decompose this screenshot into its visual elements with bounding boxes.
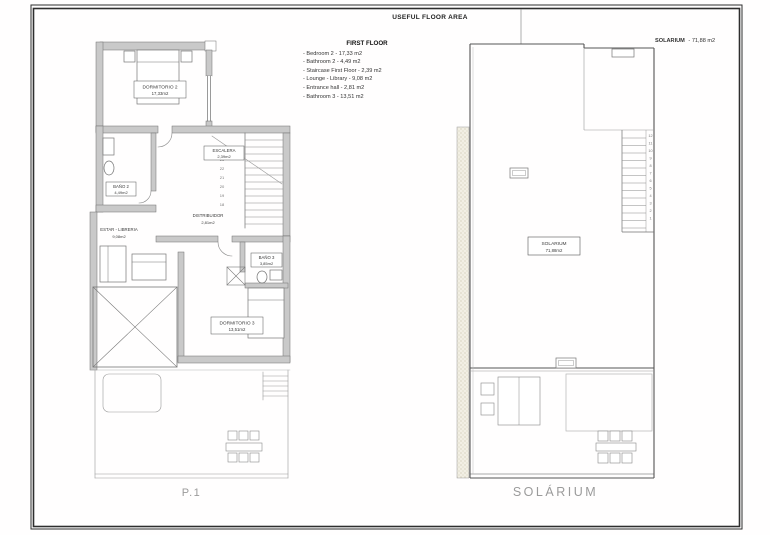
sol-step-number: 7 — [649, 172, 651, 176]
plan-caption-solarium: SOLÁRIUM — [457, 485, 654, 499]
room-name: DORMITORIO 2 — [142, 85, 177, 91]
p1-step-number: 18 — [220, 202, 225, 207]
floor-plan-p1: 23 22 21 20 19 18 — [90, 41, 290, 478]
plan-caption-p1: P.1 — [95, 487, 288, 499]
nightstand — [124, 51, 135, 62]
room-name: BAÑO 3 — [259, 255, 275, 260]
label-bano2: BAÑO 2 4,49m2 — [106, 182, 136, 196]
p1-step-number: 19 — [220, 193, 225, 198]
room-area: 9,08m2 — [112, 234, 126, 239]
sol-step-number: 9 — [649, 157, 651, 161]
p1-step-number: 22 — [220, 166, 225, 171]
label-estar-libreria: ESTAR - LIBRERIA 9,08m2 — [100, 227, 138, 239]
solarium-vents — [510, 49, 634, 368]
solarium-terrace-furniture — [481, 374, 652, 463]
solarium-textured-wall-strip — [457, 127, 469, 478]
planter — [103, 374, 161, 412]
legend-title: FIRST FLOOR — [303, 40, 431, 49]
solarium-area-header: SOLARIUM - 71,88 m2 — [655, 38, 765, 44]
room-area: 2,81m2 — [201, 220, 215, 225]
sofa-bottom — [132, 254, 166, 280]
room-area: 4,49m2 — [114, 190, 128, 195]
label-dormitorio2: DORMITORIO 2 17,33m2 — [134, 81, 186, 98]
solarium-outline — [470, 44, 654, 478]
solarium-header-label: SOLARIUM — [655, 38, 685, 44]
room-name: BAÑO 2 — [113, 184, 129, 189]
room-name: SOLARIUM — [541, 241, 566, 247]
p1-stair-step-numbers: 23 22 21 20 19 18 — [220, 157, 225, 207]
first-floor-legend: FIRST FLOOR - Bedroom 2 - 17,33 m2 - Bat… — [303, 40, 443, 101]
lounge-chair — [481, 383, 494, 395]
pergola-outline — [566, 374, 652, 431]
sol-step-number: 12 — [648, 134, 652, 138]
legend-item: - Entrance hall - 2,81 m2 — [303, 84, 443, 93]
room-area: 71,88m2 — [546, 248, 563, 253]
room-area: 13,51m2 — [229, 327, 246, 332]
p1-terrace — [90, 370, 290, 478]
legend-item: - Staircase First Floor - 2,39 m2 — [303, 67, 443, 76]
sol-step-number: 4 — [649, 194, 651, 198]
label-dormitorio3: DORMITORIO 3 13,51m2 — [211, 317, 263, 334]
table — [226, 443, 262, 451]
sheet-title: USEFUL FLOOR AREA — [330, 14, 530, 21]
room-name: ESTAR - LIBRERIA — [100, 227, 138, 232]
shower-bath3 — [227, 267, 245, 285]
solarium-stair-step-numbers: 12 11 10 9 8 7 6 5 4 3 2 1 — [648, 134, 652, 221]
solarium-table-chairs — [596, 431, 636, 463]
roof-vent — [612, 49, 634, 57]
sol-step-number: 8 — [649, 164, 651, 168]
room-area: 2,39m2 — [217, 154, 231, 159]
solarium-header-area: - 71,88 m2 — [688, 38, 715, 44]
room-area: 3,85m2 — [260, 261, 274, 266]
floor-plan-solarium: 12 11 10 9 8 7 6 5 4 3 2 1 — [457, 44, 654, 478]
drawing-sheet: 23 22 21 20 19 18 — [0, 0, 770, 535]
p1-steps — [263, 372, 288, 400]
legend-item: - Lounge - Library - 9,08 m2 — [303, 75, 443, 84]
p1-step-number: 20 — [220, 184, 225, 189]
bath3-sink — [270, 270, 282, 280]
sol-step-number: 3 — [649, 202, 651, 206]
bath2-sink — [103, 138, 114, 155]
sol-step-number: 2 — [649, 209, 651, 213]
legend-item: - Bathroom 3 - 13,51 m2 — [303, 93, 443, 102]
sol-step-number: 1 — [649, 217, 651, 221]
room-name: ESCALERA — [213, 148, 236, 153]
sol-step-number: 10 — [648, 149, 652, 153]
sol-step-number: 11 — [649, 142, 653, 146]
bath2-toilet — [104, 161, 114, 175]
sol-step-number: 6 — [649, 179, 651, 183]
label-bano3: BAÑO 3 3,85m2 — [251, 253, 282, 267]
sol-step-number: 5 — [649, 187, 651, 191]
legend-item: - Bathroom 2 - 4,49 m2 — [303, 58, 443, 67]
room-name: DISTRIBUIDOR — [193, 213, 224, 218]
table — [596, 443, 636, 451]
label-solarium: SOLARIUM 71,88m2 — [528, 237, 580, 255]
legend-item: - Bedroom 2 - 17,33 m2 — [303, 50, 443, 59]
lounge-chair — [481, 403, 494, 415]
nightstand — [181, 51, 192, 62]
solarium-staircase: 12 11 10 9 8 7 6 5 4 3 2 1 — [622, 130, 654, 232]
sofa-left — [100, 246, 126, 282]
room-name: DORMITORIO 3 — [219, 321, 254, 327]
label-distribuidor: DISTRIBUIDOR 2,81m2 — [193, 213, 224, 225]
bath3-toilet — [257, 271, 267, 283]
void-cross-square — [93, 287, 177, 367]
p1-table-chairs — [226, 431, 262, 462]
room-area: 17,33m2 — [152, 91, 169, 96]
p1-step-number: 21 — [220, 175, 225, 180]
label-escalera: ESCALERA 2,39m2 — [204, 146, 244, 160]
